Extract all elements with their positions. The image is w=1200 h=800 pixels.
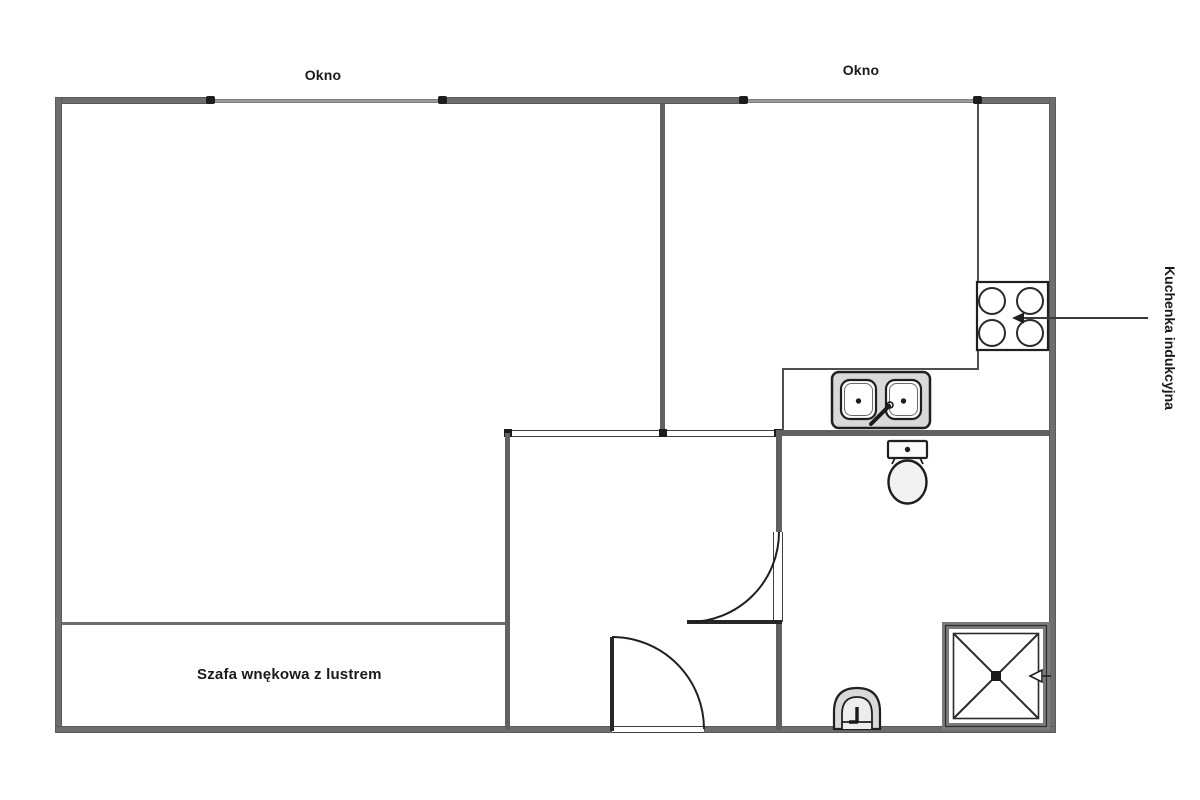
toilet-icon — [888, 441, 927, 504]
kitchen-sink-icon — [832, 372, 930, 428]
window-left-label: Okno — [280, 67, 366, 83]
bathroom-door-arc-icon — [689, 532, 779, 622]
fixtures-layer — [0, 0, 1200, 800]
wardrobe-label: Szafa wnękowa z lustrem — [197, 666, 382, 683]
window-right-label: Okno — [818, 62, 904, 78]
floor-plan: Okno Okno Szafa wnękowa z lustrem Kuchen… — [0, 0, 1200, 800]
cooktop-label: Kuchenka indukcyjna — [1161, 258, 1179, 418]
washbasin-icon — [834, 688, 880, 729]
cooktop-icon — [977, 282, 1048, 350]
entrance-door-arc-icon — [612, 637, 704, 729]
shower-icon — [946, 626, 1052, 727]
